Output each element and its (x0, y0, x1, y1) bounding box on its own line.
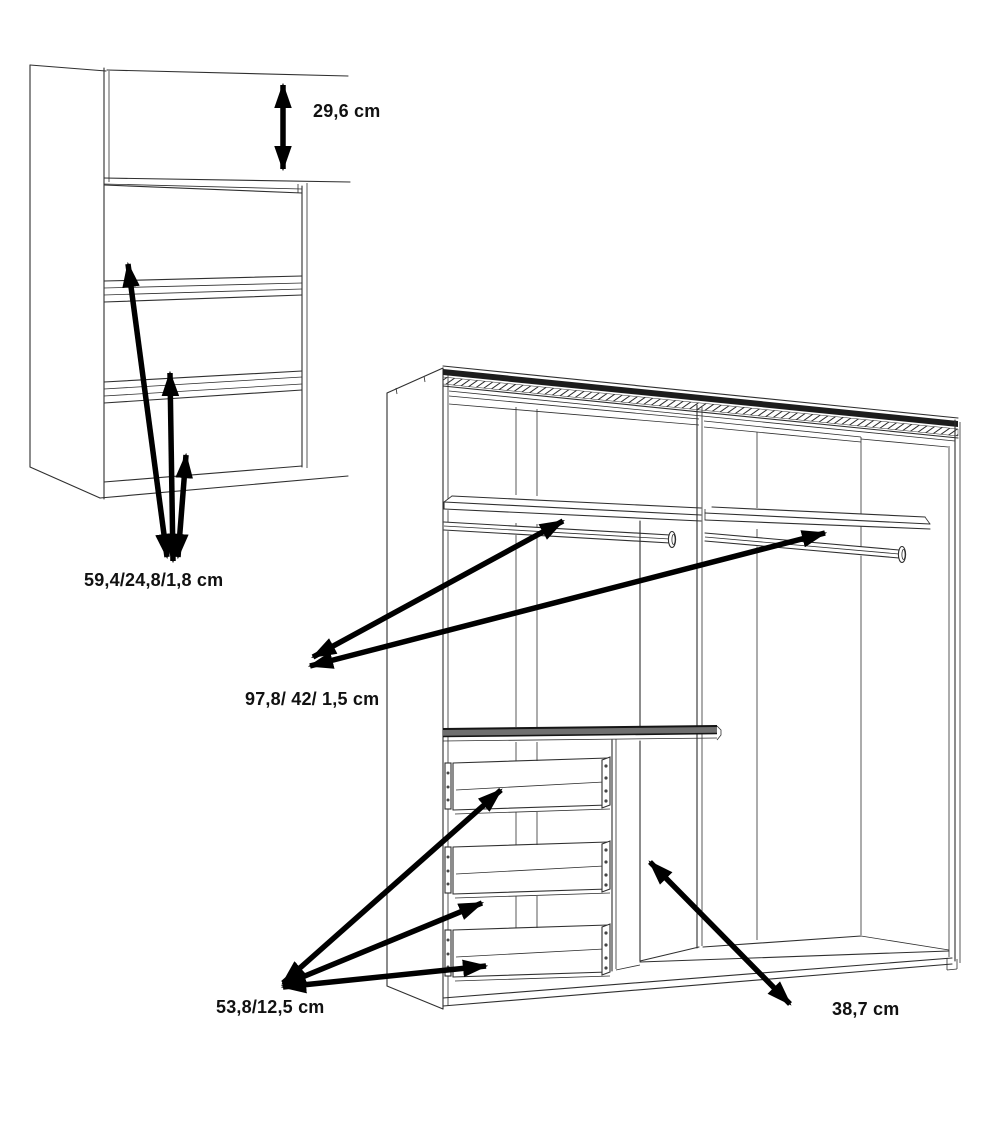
compartment-ceilings (449, 396, 948, 935)
drawer-box (453, 924, 610, 981)
dimension-label-drawer-front: 59,4/24,8/1,8 cm (84, 570, 223, 591)
arrow-drawer-box-2 (283, 903, 482, 985)
arrow-drawer-front-3 (178, 455, 186, 557)
drawer-box (453, 757, 610, 814)
left-shelf (444, 496, 701, 521)
arrow-shelf-left (313, 521, 563, 657)
diagram-line-art (0, 0, 1000, 1125)
interior-drawer-unit (443, 726, 721, 981)
sliding-door-track (443, 366, 958, 441)
right-side-panel (947, 420, 960, 970)
back-wall-seams (516, 407, 757, 940)
dimension-label-drawer-inner: 53,8/12,5 cm (216, 997, 324, 1018)
center-divider (640, 405, 702, 961)
chest-detail-view (30, 65, 350, 499)
drawer-box (453, 841, 610, 898)
dimension-label-shelf-height: 29,6 cm (313, 101, 380, 122)
arrow-drawer-front-2 (170, 373, 173, 561)
drawer-slide-strips (445, 763, 451, 976)
arrow-drawer-box-1 (283, 790, 501, 983)
assembly-diagram: 29,6 cm 59,4/24,8/1,8 cm 97,8/ 42/ 1,5 c… (0, 0, 1000, 1125)
dimension-label-shelf: 97,8/ 42/ 1,5 cm (245, 689, 379, 710)
dimension-arrows (128, 85, 825, 1004)
left-side-panel (387, 368, 448, 1009)
dimension-label-section-depth: 38,7 cm (832, 999, 899, 1020)
wardrobe-interior-view (387, 366, 960, 1009)
right-shelf (705, 507, 930, 529)
arrow-drawer-front-1 (128, 264, 167, 557)
